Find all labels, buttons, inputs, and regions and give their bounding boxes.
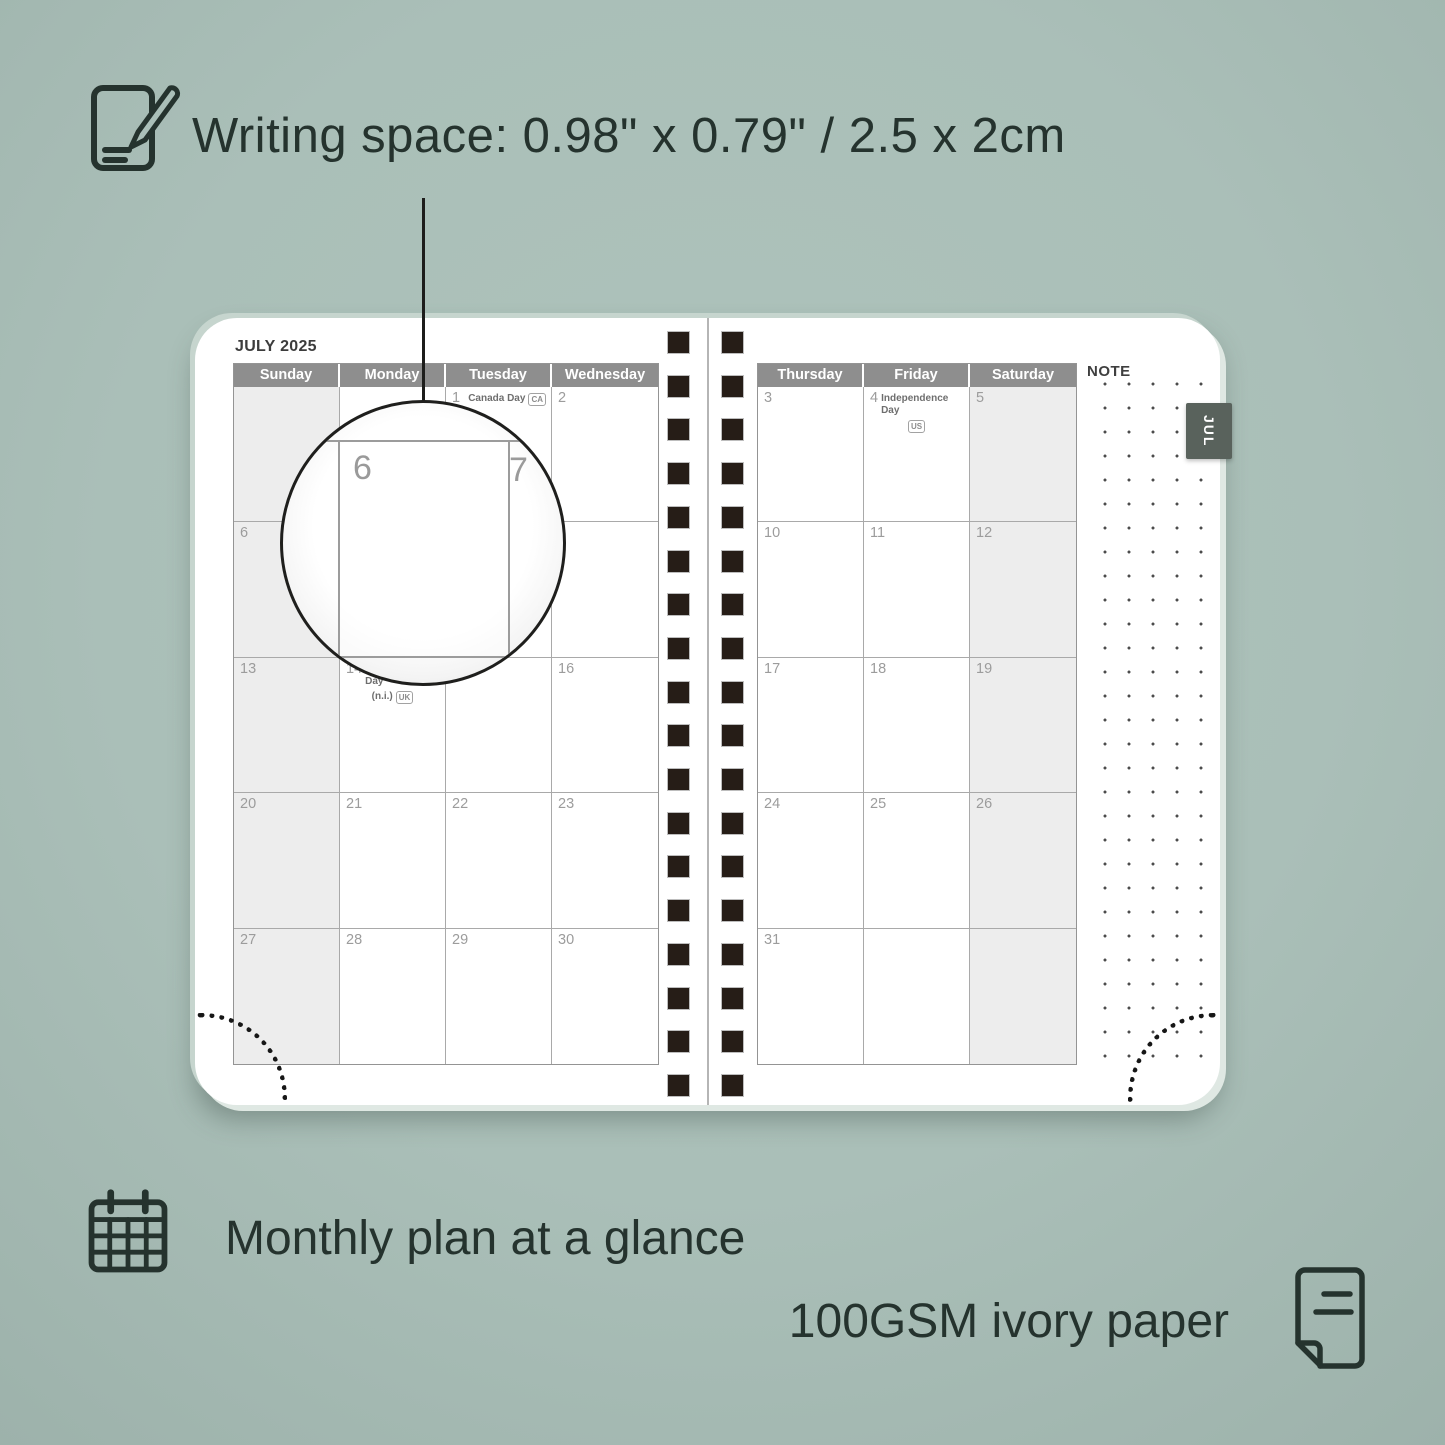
magnifier-circle: 6 7	[280, 400, 566, 686]
binding-hole	[668, 551, 689, 572]
binding-hole	[722, 900, 743, 921]
day-cell: 21	[340, 793, 446, 928]
binding-hole	[722, 638, 743, 659]
day-number: 2	[558, 391, 566, 407]
day-number: 20	[240, 797, 256, 813]
day-cell: 4Independence DayUS	[864, 387, 970, 522]
day-header: Thursday	[758, 364, 864, 387]
day-number: 23	[558, 797, 574, 813]
day-number: 10	[764, 526, 780, 542]
binding-hole	[722, 1031, 743, 1052]
calendar-icon	[80, 1185, 176, 1281]
binding-hole	[668, 332, 689, 353]
binding-hole	[722, 988, 743, 1009]
day-number: 28	[346, 933, 362, 949]
note-label: NOTE	[1087, 363, 1139, 382]
corner-perforation-right	[1123, 1008, 1218, 1103]
day-number: 22	[452, 797, 468, 813]
day-cell: 25	[864, 793, 970, 928]
binding-hole	[722, 856, 743, 877]
day-cell: 20	[234, 793, 340, 928]
day-header: Wednesday	[552, 364, 658, 387]
pointer-line	[422, 198, 425, 401]
month-title: JULY 2025	[235, 338, 317, 356]
binding-hole	[668, 1031, 689, 1052]
day-number: 29	[452, 933, 468, 949]
day-cell: 2	[552, 387, 658, 522]
binding-hole	[668, 463, 689, 484]
binding-hole	[722, 813, 743, 834]
day-header: Sunday	[234, 364, 340, 387]
binding-hole	[722, 463, 743, 484]
day-number: 17	[764, 662, 780, 678]
day-number: 27	[240, 933, 256, 949]
binding-hole	[722, 507, 743, 528]
day-cell: 11	[864, 522, 970, 657]
paper-label: 100GSM ivory paper	[789, 1294, 1229, 1349]
day-cell: 10	[758, 522, 864, 657]
day-cell: 12	[970, 522, 1076, 657]
day-number: 25	[870, 797, 886, 813]
day-number: 13	[240, 662, 256, 678]
day-number: 16	[558, 662, 574, 678]
paper-icon	[1277, 1262, 1369, 1374]
binding-hole	[668, 725, 689, 746]
day-number: 26	[976, 797, 992, 813]
holiday-label-line2: (n.i.)	[372, 691, 393, 702]
day-cell	[970, 929, 1076, 1064]
day-number: 30	[558, 933, 574, 949]
day-cell: 31	[758, 929, 864, 1064]
binding-hole	[722, 332, 743, 353]
monthly-plan-label: Monthly plan at a glance	[225, 1211, 745, 1266]
binding-hole	[668, 900, 689, 921]
binding-hole	[668, 419, 689, 440]
binding-hole	[722, 725, 743, 746]
holiday-label: Independence Day	[881, 393, 964, 417]
binding-hole	[668, 376, 689, 397]
day-header: Monday	[340, 364, 446, 387]
binding-hole	[668, 682, 689, 703]
page-divider	[707, 318, 709, 1105]
day-cell: 29	[446, 929, 552, 1064]
binding-hole	[722, 944, 743, 965]
corner-perforation-left	[197, 1008, 292, 1103]
binding-hole	[668, 813, 689, 834]
day-cell: 5	[970, 387, 1076, 522]
day-cell: 18	[864, 658, 970, 793]
binding-hole	[668, 594, 689, 615]
day-number: 18	[870, 662, 886, 678]
writing-space-label: Writing space: 0.98" x 0.79" / 2.5 x 2cm	[192, 108, 1066, 164]
day-number: 5	[976, 391, 984, 407]
day-cell: 28	[340, 929, 446, 1064]
calendar-grid-right: ThursdayFridaySaturday34Independence Day…	[757, 363, 1077, 1065]
day-cell: 22	[446, 793, 552, 928]
holiday-label: Canada Day	[468, 393, 525, 405]
day-header: Saturday	[970, 364, 1076, 387]
day-number: 12	[976, 526, 992, 542]
day-cell: 19	[970, 658, 1076, 793]
day-cell: 9	[552, 522, 658, 657]
magnified-day-7: 7	[509, 451, 528, 490]
binding-hole	[722, 594, 743, 615]
day-cell: 26	[970, 793, 1076, 928]
binding-hole	[722, 1075, 743, 1096]
binding-hole	[668, 1075, 689, 1096]
binding-hole	[722, 551, 743, 572]
country-badge: CA	[528, 393, 546, 406]
country-badge: US	[908, 420, 925, 433]
month-tab-jul: JUL	[1186, 403, 1232, 459]
binding-hole	[668, 507, 689, 528]
binding-hole	[668, 638, 689, 659]
day-number: 24	[764, 797, 780, 813]
binding-hole	[668, 944, 689, 965]
day-cell: 16	[552, 658, 658, 793]
binding-hole	[722, 376, 743, 397]
country-badge: UK	[396, 691, 414, 704]
binding-hole	[722, 419, 743, 440]
day-cell: 17	[758, 658, 864, 793]
day-number: 6	[240, 526, 248, 542]
day-number: 21	[346, 797, 362, 813]
day-cell: 13	[234, 658, 340, 793]
day-number: 11	[870, 526, 885, 542]
binding-hole	[722, 682, 743, 703]
note-dot-grid: NOTE	[1085, 366, 1207, 1061]
binding-hole	[668, 988, 689, 1009]
magnified-day-6: 6	[353, 449, 372, 488]
day-header: Friday	[864, 364, 970, 387]
day-number: 19	[976, 662, 992, 678]
binding-hole	[668, 856, 689, 877]
day-cell	[864, 929, 970, 1064]
binding-hole	[668, 769, 689, 790]
day-cell: 3	[758, 387, 864, 522]
day-cell: 30	[552, 929, 658, 1064]
day-number: 3	[764, 391, 772, 407]
binding-hole	[722, 769, 743, 790]
day-number: 4	[870, 391, 878, 407]
day-header: Tuesday	[446, 364, 552, 387]
writing-note-pencil-icon	[84, 74, 184, 178]
day-cell: 23	[552, 793, 658, 928]
day-number: 31	[764, 933, 780, 949]
day-cell: 24	[758, 793, 864, 928]
